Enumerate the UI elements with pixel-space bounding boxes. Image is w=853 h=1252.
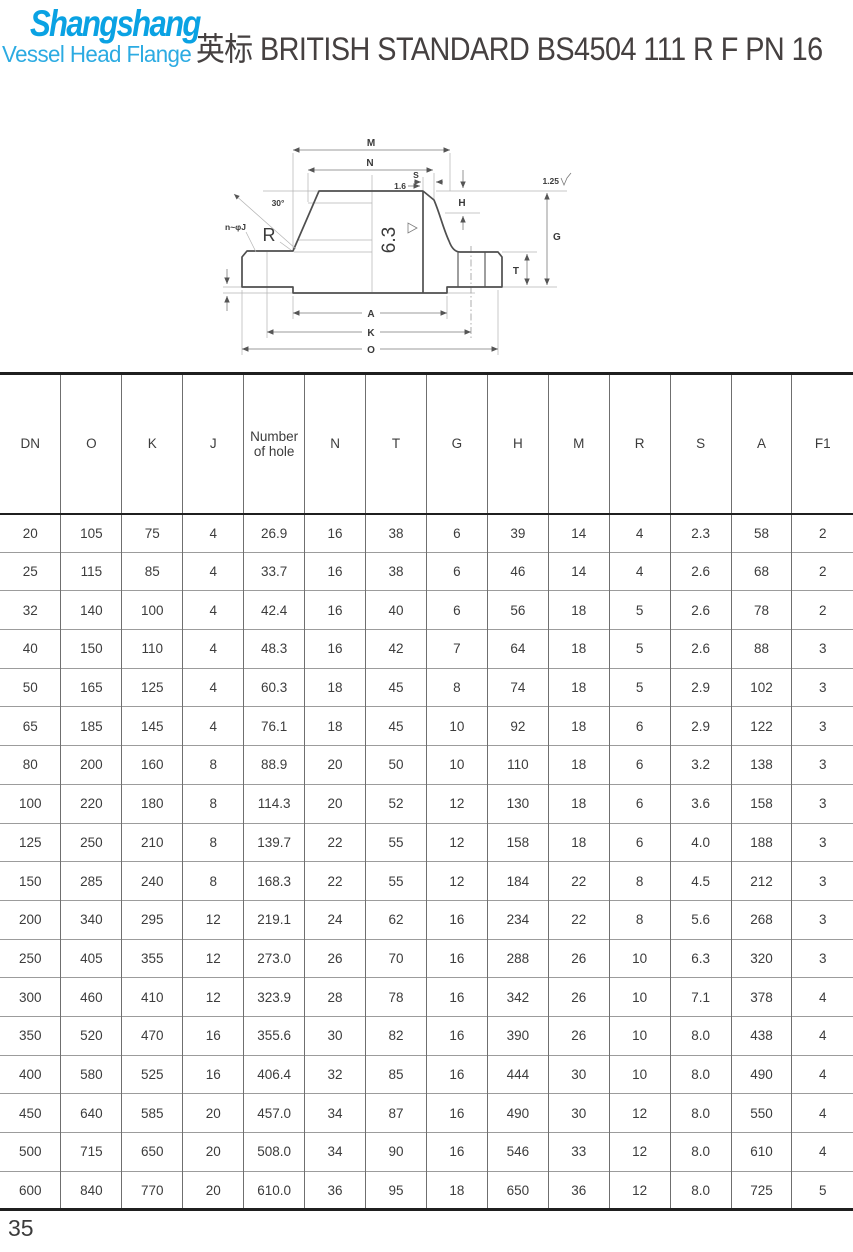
table-cell: 550 xyxy=(731,1094,792,1133)
table-cell: 18 xyxy=(548,707,609,746)
table-cell: 55 xyxy=(366,862,427,901)
table-cell: 12 xyxy=(183,939,244,978)
table-cell: 50 xyxy=(0,668,61,707)
column-header: T xyxy=(366,374,427,514)
table-cell: 22 xyxy=(305,823,366,862)
table-cell: 500 xyxy=(0,1133,61,1172)
table-cell: 268 xyxy=(731,900,792,939)
table-cell: 12 xyxy=(609,1171,670,1210)
table-cell: 650 xyxy=(122,1133,183,1172)
table-row: 1252502108139.72255121581864.01883 xyxy=(0,823,853,862)
table-cell: 16 xyxy=(305,630,366,669)
table-cell: 12 xyxy=(183,978,244,1017)
table-cell: 840 xyxy=(61,1171,122,1210)
table-cell: 355 xyxy=(122,939,183,978)
table-cell: 4 xyxy=(792,1016,853,1055)
table-cell: 640 xyxy=(61,1094,122,1133)
table-cell: 16 xyxy=(426,1016,487,1055)
table-cell: 8.0 xyxy=(670,1171,731,1210)
angle-30-label: 30° xyxy=(272,198,285,208)
table-cell: 8 xyxy=(183,746,244,785)
table-cell: 3 xyxy=(792,784,853,823)
table-cell: 220 xyxy=(61,784,122,823)
table-cell: 102 xyxy=(731,668,792,707)
roughness-check-icon xyxy=(561,173,571,185)
table-cell: 16 xyxy=(183,1055,244,1094)
table-cell: 20 xyxy=(183,1133,244,1172)
table-cell: 6 xyxy=(609,746,670,785)
table-cell: 87 xyxy=(366,1094,427,1133)
table-cell: 12 xyxy=(183,900,244,939)
table-cell: 200 xyxy=(61,746,122,785)
column-header: G xyxy=(426,374,487,514)
table-cell: 12 xyxy=(426,823,487,862)
table-cell: 520 xyxy=(61,1016,122,1055)
dim-label-o: O xyxy=(367,345,375,356)
table-cell: 378 xyxy=(731,978,792,1017)
table-cell: 150 xyxy=(61,630,122,669)
table-cell: 20 xyxy=(183,1171,244,1210)
bolt-hole-label: n~φJ xyxy=(225,222,246,232)
table-cell: 3 xyxy=(792,862,853,901)
table-cell: 82 xyxy=(366,1016,427,1055)
table-cell: 95 xyxy=(366,1171,427,1210)
table-cell: 323.9 xyxy=(244,978,305,1017)
table-cell: 16 xyxy=(305,514,366,553)
table-cell: 295 xyxy=(122,900,183,939)
table-row: 50071565020508.034901654633128.06104 xyxy=(0,1133,853,1172)
table-cell: 33 xyxy=(548,1133,609,1172)
table-cell: 8.0 xyxy=(670,1094,731,1133)
table-cell: 525 xyxy=(122,1055,183,1094)
table-cell: 7 xyxy=(426,630,487,669)
table-cell: 5.6 xyxy=(670,900,731,939)
table-cell: 610 xyxy=(731,1133,792,1172)
table-cell: 4 xyxy=(792,1094,853,1133)
table-cell: 139.7 xyxy=(244,823,305,862)
table-cell: 250 xyxy=(61,823,122,862)
brand-tagline: Vessel Head Flange xyxy=(2,41,225,68)
table-cell: 64 xyxy=(487,630,548,669)
table-cell: 42.4 xyxy=(244,591,305,630)
table-cell: 350 xyxy=(0,1016,61,1055)
table-cell: 10 xyxy=(609,1055,670,1094)
table-header-row: DNOKJNumber of holeNTGHMRSAF1 xyxy=(0,374,853,514)
table-cell: 50 xyxy=(366,746,427,785)
column-header: F1 xyxy=(792,374,853,514)
table-cell: 30 xyxy=(305,1016,366,1055)
table-cell: 10 xyxy=(426,707,487,746)
table-cell: 460 xyxy=(61,978,122,1017)
table-cell: 585 xyxy=(122,1094,183,1133)
table-cell: 12 xyxy=(426,862,487,901)
table-cell: 185 xyxy=(61,707,122,746)
table-cell: 18 xyxy=(426,1171,487,1210)
table-cell: 26 xyxy=(548,978,609,1017)
table-cell: 34 xyxy=(305,1094,366,1133)
catalog-page: { "brand": { "name": "Shangshang", "tagl… xyxy=(0,0,853,1252)
table-cell: 234 xyxy=(487,900,548,939)
table-cell: 40 xyxy=(366,591,427,630)
table-cell: 7.1 xyxy=(670,978,731,1017)
table-cell: 145 xyxy=(122,707,183,746)
table-cell: 18 xyxy=(305,707,366,746)
table-cell: 16 xyxy=(426,978,487,1017)
table-body: 2010575426.916386391442.35822511585433.7… xyxy=(0,514,853,1210)
table-cell: 4 xyxy=(792,978,853,1017)
table-cell: 22 xyxy=(305,862,366,901)
table-cell: 8 xyxy=(609,862,670,901)
table-cell: 4 xyxy=(792,1133,853,1172)
table-cell: 115 xyxy=(61,552,122,591)
table-cell: 457.0 xyxy=(244,1094,305,1133)
table-cell: 5 xyxy=(609,630,670,669)
table-cell: 3.6 xyxy=(670,784,731,823)
table-row: 60084077020610.036951865036128.07255 xyxy=(0,1171,853,1210)
table-cell: 40 xyxy=(0,630,61,669)
table-cell: 212 xyxy=(731,862,792,901)
table-cell: 70 xyxy=(366,939,427,978)
table-cell: 5 xyxy=(792,1171,853,1210)
table-cell: 4 xyxy=(183,552,244,591)
table-cell: 210 xyxy=(122,823,183,862)
roughness-1-6-label: 1.6 xyxy=(394,181,406,191)
table-cell: 390 xyxy=(487,1016,548,1055)
table-cell: 405 xyxy=(61,939,122,978)
table-cell: 2.6 xyxy=(670,630,731,669)
table-cell: 8 xyxy=(183,823,244,862)
table-cell: 22 xyxy=(548,900,609,939)
table-cell: 4 xyxy=(183,707,244,746)
column-header: H xyxy=(487,374,548,514)
table-row: 2010575426.916386391442.3582 xyxy=(0,514,853,553)
table-cell: 490 xyxy=(731,1055,792,1094)
table-cell: 16 xyxy=(426,1133,487,1172)
table-cell: 90 xyxy=(366,1133,427,1172)
table-row: 50165125460.318458741852.91023 xyxy=(0,668,853,707)
table-cell: 100 xyxy=(0,784,61,823)
table-cell: 16 xyxy=(183,1016,244,1055)
table-cell: 158 xyxy=(487,823,548,862)
table-cell: 342 xyxy=(487,978,548,1017)
table-cell: 320 xyxy=(731,939,792,978)
column-header: DN xyxy=(0,374,61,514)
table-cell: 2.3 xyxy=(670,514,731,553)
table-cell: 410 xyxy=(122,978,183,1017)
table-cell: 45 xyxy=(366,707,427,746)
table-cell: 2 xyxy=(792,591,853,630)
table-cell: 122 xyxy=(731,707,792,746)
table-cell: 12 xyxy=(609,1133,670,1172)
flange-drawing: M N S 1.6 H G 1.25 30° n~φJ R 6.3 T A K … xyxy=(190,122,610,372)
roughness-triangle-icon xyxy=(408,223,417,233)
table-cell: 45 xyxy=(366,668,427,707)
table-cell: 76.1 xyxy=(244,707,305,746)
table-cell: 16 xyxy=(426,900,487,939)
table-cell: 8 xyxy=(426,668,487,707)
dim-label-n: N xyxy=(366,158,373,169)
table-cell: 450 xyxy=(0,1094,61,1133)
table-cell: 10 xyxy=(609,978,670,1017)
table-cell: 38 xyxy=(366,514,427,553)
dim-label-h: H xyxy=(458,198,465,209)
table-row: 32140100442.416406561852.6782 xyxy=(0,591,853,630)
table-cell: 12 xyxy=(609,1094,670,1133)
table-cell: 438 xyxy=(731,1016,792,1055)
table-cell: 158 xyxy=(731,784,792,823)
table-cell: 16 xyxy=(426,1094,487,1133)
table-row: 2511585433.716386461442.6682 xyxy=(0,552,853,591)
table-cell: 4.0 xyxy=(670,823,731,862)
table-cell: 18 xyxy=(305,668,366,707)
table-cell: 3 xyxy=(792,630,853,669)
table-cell: 140 xyxy=(61,591,122,630)
table-cell: 16 xyxy=(426,939,487,978)
table-cell: 6 xyxy=(426,552,487,591)
column-header: M xyxy=(548,374,609,514)
table-cell: 22 xyxy=(548,862,609,901)
table-cell: 24 xyxy=(305,900,366,939)
table-cell: 180 xyxy=(122,784,183,823)
table-cell: 4 xyxy=(183,514,244,553)
table-row: 65185145476.1184510921862.91223 xyxy=(0,707,853,746)
table-row: 1002201808114.32052121301863.61583 xyxy=(0,784,853,823)
table-cell: 8.0 xyxy=(670,1055,731,1094)
table-cell: 4 xyxy=(609,514,670,553)
table-cell: 12 xyxy=(426,784,487,823)
table-cell: 18 xyxy=(548,784,609,823)
table-cell: 340 xyxy=(61,900,122,939)
table-cell: 42 xyxy=(366,630,427,669)
table-cell: 8.0 xyxy=(670,1133,731,1172)
radius-label: R xyxy=(263,225,276,245)
table-cell: 125 xyxy=(0,823,61,862)
table-cell: 62 xyxy=(366,900,427,939)
table-cell: 30 xyxy=(548,1094,609,1133)
table-row: 35052047016355.630821639026108.04384 xyxy=(0,1016,853,1055)
table-cell: 25 xyxy=(0,552,61,591)
table-cell: 78 xyxy=(731,591,792,630)
column-header: Number of hole xyxy=(244,374,305,514)
table-cell: 3 xyxy=(792,746,853,785)
table-cell: 3.2 xyxy=(670,746,731,785)
table-cell: 88 xyxy=(731,630,792,669)
table-cell: 18 xyxy=(548,591,609,630)
table-cell: 2.6 xyxy=(670,591,731,630)
table-cell: 3 xyxy=(792,707,853,746)
table-cell: 3 xyxy=(792,668,853,707)
table-cell: 6 xyxy=(426,591,487,630)
table-cell: 114.3 xyxy=(244,784,305,823)
table-cell: 36 xyxy=(305,1171,366,1210)
table-cell: 88.9 xyxy=(244,746,305,785)
table-cell: 30 xyxy=(548,1055,609,1094)
table-cell: 74 xyxy=(487,668,548,707)
table-cell: 4 xyxy=(183,668,244,707)
table-cell: 18 xyxy=(548,668,609,707)
table-cell: 355.6 xyxy=(244,1016,305,1055)
table-cell: 16 xyxy=(305,552,366,591)
table-cell: 8 xyxy=(183,862,244,901)
table-cell: 16 xyxy=(426,1055,487,1094)
table-cell: 26.9 xyxy=(244,514,305,553)
table-cell: 4.5 xyxy=(670,862,731,901)
table-cell: 20 xyxy=(305,746,366,785)
table-cell: 48.3 xyxy=(244,630,305,669)
table-cell: 8 xyxy=(183,784,244,823)
table-row: 45064058520457.034871649030128.05504 xyxy=(0,1094,853,1133)
table-cell: 18 xyxy=(548,746,609,785)
table-cell: 20 xyxy=(183,1094,244,1133)
table-cell: 288 xyxy=(487,939,548,978)
column-header: K xyxy=(122,374,183,514)
table-cell: 165 xyxy=(61,668,122,707)
table-row: 1502852408168.32255121842284.52123 xyxy=(0,862,853,901)
table-cell: 20 xyxy=(305,784,366,823)
table-cell: 6 xyxy=(609,784,670,823)
table-cell: 32 xyxy=(305,1055,366,1094)
table-cell: 490 xyxy=(487,1094,548,1133)
table-cell: 610.0 xyxy=(244,1171,305,1210)
table-cell: 105 xyxy=(61,514,122,553)
table-cell: 3 xyxy=(792,939,853,978)
table-cell: 26 xyxy=(548,1016,609,1055)
table-cell: 4 xyxy=(609,552,670,591)
table-cell: 2.9 xyxy=(670,707,731,746)
column-header: N xyxy=(305,374,366,514)
table-cell: 26 xyxy=(305,939,366,978)
column-header: R xyxy=(609,374,670,514)
table-row: 25040535512273.026701628826106.33203 xyxy=(0,939,853,978)
dim-label-k: K xyxy=(367,328,375,339)
table-cell: 300 xyxy=(0,978,61,1017)
table-cell: 92 xyxy=(487,707,548,746)
table-cell: 508.0 xyxy=(244,1133,305,1172)
table-row: 30046041012323.928781634226107.13784 xyxy=(0,978,853,1017)
table-cell: 285 xyxy=(61,862,122,901)
table-cell: 200 xyxy=(0,900,61,939)
table-cell: 36 xyxy=(548,1171,609,1210)
table-cell: 100 xyxy=(122,591,183,630)
table-cell: 20 xyxy=(0,514,61,553)
dim-label-a: A xyxy=(367,309,374,320)
table-cell: 250 xyxy=(0,939,61,978)
table-cell: 55 xyxy=(366,823,427,862)
table-row: 20034029512219.12462162342285.62683 xyxy=(0,900,853,939)
table-cell: 65 xyxy=(0,707,61,746)
table-cell: 34 xyxy=(305,1133,366,1172)
table-cell: 150 xyxy=(0,862,61,901)
table-cell: 4 xyxy=(792,1055,853,1094)
flange-cross-section: M N S 1.6 H G 1.25 30° n~φJ R 6.3 T A K … xyxy=(190,122,610,372)
table-cell: 58 xyxy=(731,514,792,553)
table-row: 40150110448.316427641852.6883 xyxy=(0,630,853,669)
table-cell: 188 xyxy=(731,823,792,862)
table-cell: 4 xyxy=(183,630,244,669)
table-cell: 85 xyxy=(122,552,183,591)
table-cell: 16 xyxy=(305,591,366,630)
table-cell: 10 xyxy=(609,1016,670,1055)
table-cell: 33.7 xyxy=(244,552,305,591)
table-cell: 110 xyxy=(122,630,183,669)
dim-label-t: T xyxy=(513,266,519,277)
table-cell: 52 xyxy=(366,784,427,823)
table-cell: 5 xyxy=(609,591,670,630)
table-cell: 46 xyxy=(487,552,548,591)
page-title: 英标 BRITISH STANDARD BS4504 111 R F PN 16 xyxy=(196,24,823,70)
table-cell: 75 xyxy=(122,514,183,553)
column-header: O xyxy=(61,374,122,514)
roughness-1-25-label: 1.25 xyxy=(542,176,559,186)
table-cell: 56 xyxy=(487,591,548,630)
table-cell: 184 xyxy=(487,862,548,901)
table-cell: 470 xyxy=(122,1016,183,1055)
table-cell: 6 xyxy=(426,514,487,553)
table-cell: 160 xyxy=(122,746,183,785)
table-cell: 400 xyxy=(0,1055,61,1094)
table-cell: 138 xyxy=(731,746,792,785)
table-cell: 125 xyxy=(122,668,183,707)
table-cell: 273.0 xyxy=(244,939,305,978)
table-row: 40058052516406.432851644430108.04904 xyxy=(0,1055,853,1094)
table-cell: 18 xyxy=(548,823,609,862)
table-cell: 80 xyxy=(0,746,61,785)
table-cell: 580 xyxy=(61,1055,122,1094)
table-cell: 546 xyxy=(487,1133,548,1172)
table-cell: 4 xyxy=(183,591,244,630)
table-cell: 6 xyxy=(609,823,670,862)
table-cell: 14 xyxy=(548,552,609,591)
table-cell: 2 xyxy=(792,514,853,553)
column-header: S xyxy=(670,374,731,514)
dim-label-m: M xyxy=(367,138,375,149)
table-cell: 725 xyxy=(731,1171,792,1210)
table-cell: 444 xyxy=(487,1055,548,1094)
column-header: J xyxy=(183,374,244,514)
table-cell: 85 xyxy=(366,1055,427,1094)
table-cell: 38 xyxy=(366,552,427,591)
table-cell: 10 xyxy=(609,939,670,978)
table-cell: 3 xyxy=(792,823,853,862)
table-cell: 110 xyxy=(487,746,548,785)
table-cell: 2 xyxy=(792,552,853,591)
table-cell: 2.6 xyxy=(670,552,731,591)
table-cell: 219.1 xyxy=(244,900,305,939)
table-row: 80200160888.92050101101863.21383 xyxy=(0,746,853,785)
table-cell: 650 xyxy=(487,1171,548,1210)
table-cell: 6 xyxy=(609,707,670,746)
table-cell: 715 xyxy=(61,1133,122,1172)
table-cell: 600 xyxy=(0,1171,61,1210)
table-cell: 18 xyxy=(548,630,609,669)
table-cell: 60.3 xyxy=(244,668,305,707)
table-cell: 8.0 xyxy=(670,1016,731,1055)
dim-label-g: G xyxy=(553,232,561,243)
table-cell: 240 xyxy=(122,862,183,901)
table-cell: 3 xyxy=(792,900,853,939)
table-cell: 78 xyxy=(366,978,427,1017)
table-cell: 68 xyxy=(731,552,792,591)
table-cell: 32 xyxy=(0,591,61,630)
page-number: 35 xyxy=(8,1215,34,1242)
table-cell: 26 xyxy=(548,939,609,978)
table-cell: 5 xyxy=(609,668,670,707)
column-header: A xyxy=(731,374,792,514)
table-cell: 2.9 xyxy=(670,668,731,707)
dim-label-s: S xyxy=(413,170,419,180)
roughness-6-3-label: 6.3 xyxy=(379,227,400,253)
table-cell: 28 xyxy=(305,978,366,1017)
